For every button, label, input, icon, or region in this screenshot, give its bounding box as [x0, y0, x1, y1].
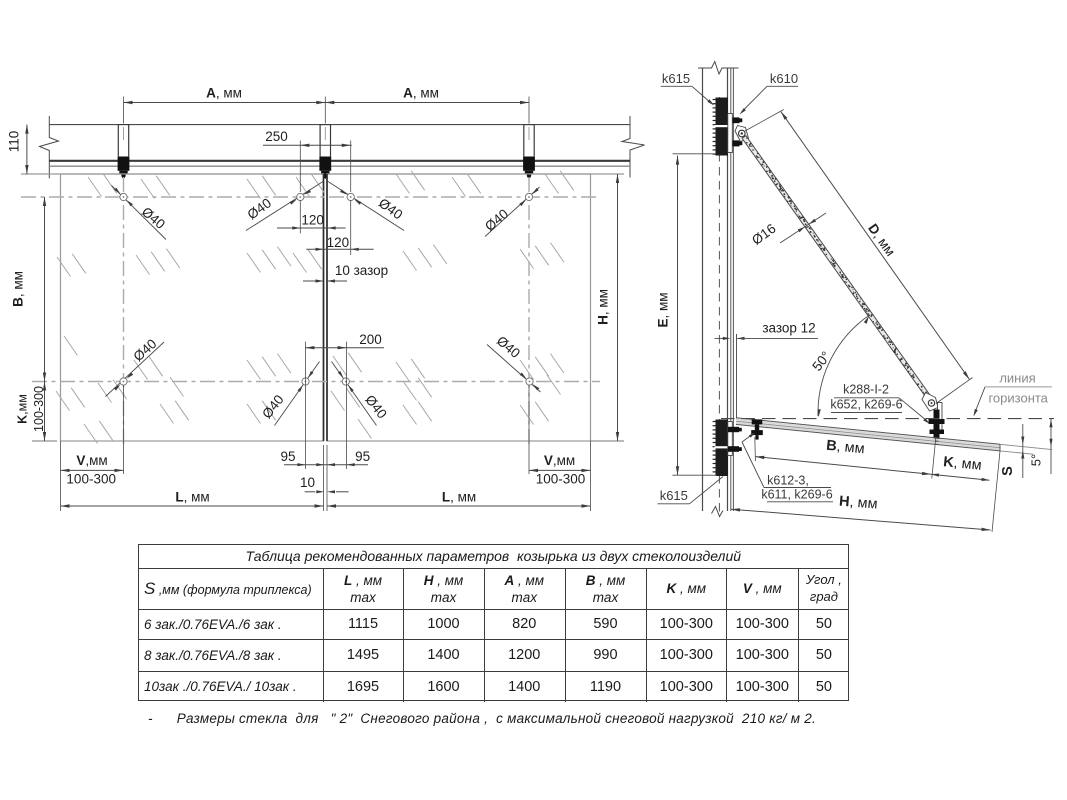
svg-text:A, мм: A, мм: [403, 86, 439, 101]
svg-text:k288-I-2: k288-I-2: [843, 383, 889, 397]
svg-text:k615: k615: [662, 71, 690, 86]
svg-text:Ø40: Ø40: [130, 336, 159, 364]
svg-text:k610: k610: [770, 71, 798, 86]
svg-text:S: S: [1000, 466, 1016, 476]
svg-text:D, мм: D, мм: [865, 221, 898, 259]
svg-text:K,мм: K,мм: [16, 394, 30, 424]
svg-text:Ø40: Ø40: [376, 195, 405, 222]
svg-text:L, мм: L, мм: [175, 490, 209, 505]
svg-text:95: 95: [280, 449, 295, 464]
svg-text:10: 10: [300, 475, 315, 490]
svg-text:100-300: 100-300: [32, 386, 46, 432]
svg-text:Ø40: Ø40: [139, 204, 168, 232]
svg-text:L, мм: L, мм: [442, 490, 476, 505]
svg-text:95: 95: [355, 449, 370, 464]
svg-text:зазор 12: зазор 12: [762, 321, 815, 336]
svg-text:B, мм: B, мм: [11, 271, 26, 307]
svg-text:Ø40: Ø40: [482, 206, 511, 234]
svg-text:200: 200: [359, 332, 382, 347]
svg-text:Ø16: Ø16: [749, 221, 778, 248]
svg-text:k611, k269-6: k611, k269-6: [761, 488, 832, 502]
svg-text:V,мм: V,мм: [544, 453, 575, 468]
svg-text:горизонта: горизонта: [988, 391, 1048, 406]
svg-text:110: 110: [7, 131, 22, 153]
svg-text:Ø40: Ø40: [494, 333, 523, 361]
svg-text:Ø40: Ø40: [245, 195, 274, 222]
svg-text:120: 120: [327, 235, 350, 250]
svg-text:100-300: 100-300: [536, 472, 586, 487]
svg-text:H, мм: H, мм: [596, 289, 611, 325]
svg-text:K, мм: K, мм: [942, 454, 982, 474]
svg-text:50°: 50°: [809, 349, 833, 374]
svg-text:100-300: 100-300: [66, 472, 116, 487]
svg-text:k652, k269-6: k652, k269-6: [830, 398, 902, 412]
svg-text:V,мм: V,мм: [76, 453, 107, 468]
svg-text:B, мм: B, мм: [825, 438, 865, 458]
svg-text:Ø40: Ø40: [362, 392, 390, 421]
svg-text:10 зазор: 10 зазор: [335, 263, 388, 278]
svg-text:5°: 5°: [1029, 454, 1044, 466]
svg-text:линия: линия: [999, 371, 1035, 386]
svg-text:k612-3,: k612-3,: [767, 474, 809, 488]
svg-text:k615: k615: [660, 488, 688, 503]
svg-text:A, мм: A, мм: [206, 86, 242, 101]
svg-text:120: 120: [301, 213, 324, 228]
svg-text:250: 250: [265, 129, 288, 144]
svg-text:E, мм: E, мм: [656, 292, 671, 327]
svg-text:H, мм: H, мм: [838, 494, 878, 513]
svg-text:Ø40: Ø40: [259, 392, 287, 421]
